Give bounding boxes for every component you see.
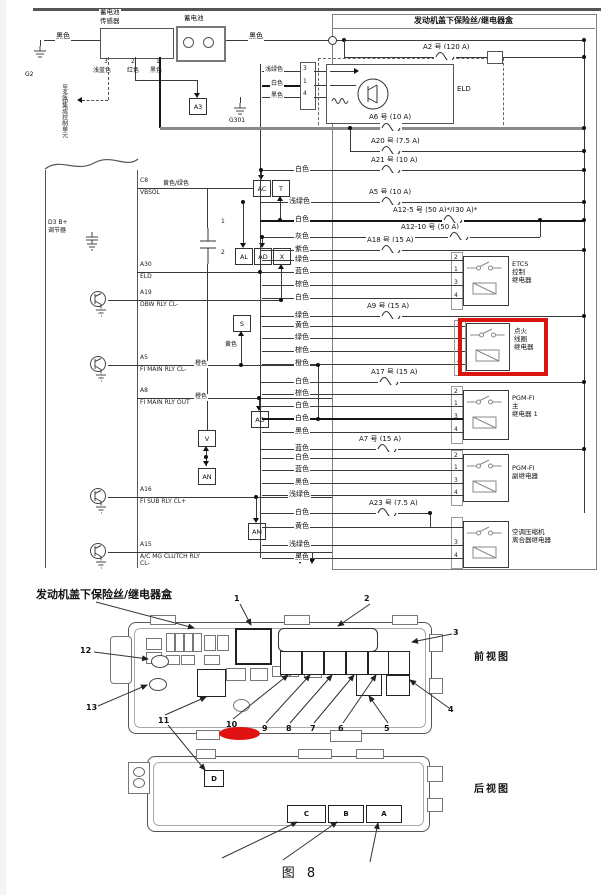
arrowhead [77,97,82,103]
junction-dot [316,417,320,421]
battery-terminal [203,37,214,48]
driver-transistor-icon [86,487,112,515]
wire-color-label: 黑色 [270,93,284,100]
wire [243,202,244,246]
wire [160,127,584,130]
pin-number: 4 [454,293,458,300]
wire-color-label: 蓝色 [294,268,310,276]
fuse-symbol [434,49,456,60]
wire [330,85,356,86]
fuse-symbol [380,194,402,205]
ecm-pin-code: A5 [140,355,148,362]
ground-icon [33,46,47,60]
junction-dot [241,200,245,204]
fuse-symbol [380,120,402,131]
manual-page: 发动机盖下保险丝/继电器盒 黑色 黑色 G2 蓄电池 传感器 蓄电池 3 2 1… [0,0,601,895]
ecm-pin-name: DBW RLY CL- [140,302,202,309]
relay-name-line: PGM-FI [512,394,538,402]
battery-sensor-label: 蓄电池 [99,9,121,16]
destination-note: 至多路集成控制单元 [60,84,67,150]
wire [262,418,463,420]
figure-caption-text: 图 8 [282,866,319,881]
etcs-relay-box [463,256,509,306]
relay-name-line: 继电器 [514,343,534,351]
wire-color-label: 灰色 [294,233,310,241]
wire [314,85,326,86]
ignition-coil-relay-box [466,323,510,371]
wire [262,364,466,365]
pin-number: 2 [454,453,458,460]
junction-dot [257,396,261,400]
figure-caption: 图 8 [0,862,601,881]
wire-color-label: 黑色 [248,33,264,41]
ecm-strip-left-edge [45,170,46,568]
wire-color-label: 橙色 [194,394,208,401]
wire [260,513,430,514]
wire [108,365,137,366]
relay-name: PGM-FI 副继电器 [512,464,538,480]
relay-symbol [467,324,508,369]
wire-dashed [82,100,108,101]
relay-symbol [464,522,505,566]
junction-dot [582,149,586,153]
battery-sensor-box [100,28,174,59]
wire [108,497,137,498]
driver-transistor-icon [86,542,112,570]
wire [318,365,319,419]
pin-number: 4 [454,427,458,434]
wire-color-label: 黑色 [294,428,310,436]
wire [262,326,466,327]
junction-dot [582,38,586,42]
wire [350,128,351,151]
ecm-pin-code: A19 [140,290,152,297]
wire-color-label: 紫色 [294,246,310,254]
wire [108,300,137,301]
wire-color-label: 棕色 [294,390,310,398]
pin-number: 2 [454,389,458,396]
ecm-pin-name: FI SUB RLY CL+ [140,499,202,506]
ecm-pin-name: ELD [140,274,202,281]
fuse-symbol [380,242,402,253]
junction-dot [582,168,586,172]
wire [262,351,466,352]
fuse-relay-box-titlebar: 发动机盖下保险丝/继电器盒 [332,14,595,29]
fuse-relay-box-title: 发动机盖下保险丝/继电器盒 [414,16,513,25]
fuse-symbol [376,505,398,516]
wire [344,40,345,57]
pin-number: 3 [454,280,458,287]
battery-terminal [183,37,194,48]
relay-name-line: 副继电器 [512,472,538,480]
wire [262,338,466,339]
arrowhead [203,461,209,466]
wire [262,285,463,286]
relay-symbol [464,257,505,302]
connector-box: AL [235,248,253,265]
wire [207,264,208,430]
ecm-pin-name: FI MAIN RLY OUT [140,400,202,407]
wire [137,188,253,189]
junction-dot [204,455,208,459]
battery-sensor-label: 传感器 [99,18,121,25]
wire-color-label: 棕色 [294,347,310,355]
wire [137,398,332,399]
relay-name-line: 继电器 1 [512,410,538,418]
junction-dot [582,447,586,451]
wire-color-label: 黄色 [294,322,310,330]
junction-dot [582,126,586,130]
wire [262,394,463,395]
wire-color-label: 黑色 [55,33,71,41]
wire-color-label: 白色 [294,415,310,423]
fuse-label: A12-5 号 (50 A)*/(30 A)* [392,207,478,215]
wire [137,365,318,366]
relay-name: 点火 线圈 继电器 [514,327,534,351]
junction-dot [260,235,264,239]
arrowhead [354,68,359,74]
wire-color-label: 白色 [294,166,310,174]
junction-dot [582,218,586,222]
fusebox-illustration: 发动机盖下保险丝/继电器盒 1 2 3 4 5 6 7 8 9 10 [0,578,601,895]
junction-dot [258,270,262,274]
arrowhead [240,243,246,248]
wire [262,260,463,261]
wire [262,558,463,559]
wire [108,552,137,553]
relay-name-line: 离合器继电器 [512,536,551,544]
driver-transistor-icon [86,355,112,383]
relay-name-line: 继电器 [512,276,532,284]
leader-lines [0,578,601,895]
pass-through-circle [328,36,337,45]
wire [262,272,463,273]
wiring-schematic: 发动机盖下保险丝/继电器盒 黑色 黑色 G2 蓄电池 传感器 蓄电池 3 2 1… [0,0,601,578]
junction-dot [254,495,258,499]
ecm-pin-name: A/C MG CLUTCH RLY CL- [140,554,210,568]
pin-number: 2 [454,255,458,262]
pin-number: 1 [454,401,458,408]
ecm-pin-code: C8 [140,178,148,185]
wire [430,513,431,527]
wire-color-label: 绿色 [294,334,310,342]
ground-label: G2 [24,72,34,79]
fuse-symbol [442,212,464,223]
ecm-pin-code: A15 [140,542,152,549]
pgm-fi-main-relay-box [463,390,509,440]
wire [137,272,260,273]
wire [159,57,161,128]
wire [262,527,463,528]
wire-color-label: 黑色 [294,479,310,487]
relay-name-line: 空调压缩机 [512,528,551,536]
pin-number: 4 [454,490,458,497]
wire [262,406,463,407]
connector-box: AN [198,468,216,485]
wire-color-label: 绿色 [294,312,310,320]
eld-label: ELD [456,86,472,94]
capacitor-symbol [197,228,219,264]
ecm-pin-code: A16 [140,487,152,494]
wire-dashed [108,57,109,100]
wire-color-label: 红色 [126,68,140,75]
connector-box: S [233,315,251,332]
wire [262,432,463,433]
pin-number: 1 [454,267,458,274]
wire-color-label: 浅绿色 [288,541,311,549]
wire [44,40,100,41]
arrowhead [238,331,244,336]
junction-dot [278,218,282,222]
pin-number: 1 [303,79,307,86]
pin-number: 4 [454,553,458,560]
connector-box: AC [253,180,271,197]
inline-connector [487,51,503,64]
wire [314,97,326,98]
bus-wire [260,64,261,558]
wire-color-label: 白色 [294,378,310,386]
pin-number: 1 [221,219,225,226]
wire-color-label: 白色 [294,509,310,517]
connector-box: A3 [189,98,207,115]
pin-number: 2 [221,250,225,257]
fuse-symbol [376,441,398,452]
junction-dot [582,380,586,384]
ecm-pin-code: A30 [140,262,152,269]
arrowhead [277,196,283,201]
fuse-symbol [380,308,402,319]
wire-color-label: 白色 [294,216,310,224]
junction-dot [239,363,243,367]
wire-color-label: 黑色 [294,554,310,562]
connector-box: V [198,430,216,447]
wire [241,333,242,365]
wire-color-label: 白色 [294,454,310,462]
pgm-fi-sub-relay-box [463,454,509,502]
wire-color-label: 黄色/绿色 [162,181,190,188]
wire [314,71,326,72]
wire [262,483,463,484]
relay-symbol [464,391,505,436]
ground-icon [233,103,247,117]
connector-box: T [272,180,290,197]
ground-label: G301 [228,118,246,125]
bus-wire [584,40,585,513]
wire [330,71,356,72]
pin-number: 4 [303,91,307,98]
wire-color-label: 黄色 [224,342,238,349]
relay-name: ETCS 控制 继电器 [512,260,532,284]
battery-label: 蓄电池 [183,15,205,22]
wire [135,57,136,80]
fuse-symbol [448,229,470,240]
relay-name-line: ETCS [512,260,532,268]
wire-color-label: 白色 [294,294,310,302]
wire [540,220,541,237]
wire-color-label: 浅绿色 [288,491,311,499]
wire-color-label: 浅蓝色 [92,68,112,75]
wire-color-label: 浅绿色 [288,198,311,206]
wire-color-label: 绿色 [294,256,310,264]
relay-name-line: PGM-FI [512,464,538,472]
fuse-symbol [378,374,400,385]
connector-box: AM [248,523,266,540]
wire-color-label: 棕色 [294,281,310,289]
pin-number: 3 [454,414,458,421]
ac-clutch-relay-box [463,521,509,568]
junction-dot [279,298,283,302]
junction-dot [259,168,263,172]
arrowhead [253,518,259,523]
wire [135,80,198,81]
driver-transistor-icon [86,290,112,318]
wire-color-label: 浅绿色 [264,67,284,74]
wire-color-label: 黄色 [294,523,310,531]
junction-dot [348,126,352,130]
eld-coil-squiggle [330,96,352,105]
pin-number: 3 [454,540,458,547]
wire [262,470,463,471]
junction-dot [582,248,586,252]
fuse-symbol [380,162,402,173]
wire-color-label: 白色 [294,402,310,410]
pin-number: 3 [303,66,307,73]
junction-dot [582,55,586,59]
relay-name: 空调压缩机 离合器继电器 [512,528,551,544]
wire [344,57,584,58]
junction-dot [316,363,320,367]
regulator-label: D3 B+ [47,220,69,227]
wire-color-label: 蓝色 [294,466,310,474]
wire [207,188,208,228]
junction-dot [582,314,586,318]
wire [262,298,463,299]
arrowhead [203,446,209,451]
ecm-pin-name: VBSOL [140,190,202,197]
pin-number: 3 [454,478,458,485]
junction-dot [538,218,542,222]
junction-dot [582,200,586,204]
wire-color-label: 橙色 [294,360,310,368]
relay-name: PGM-FI 主 继电器 1 [512,394,538,418]
wire-color-label: 白色 [270,81,284,88]
wire-color-label: 橙色 [194,361,208,368]
wire [262,458,463,459]
pin-number: 1 [454,465,458,472]
ecm-pin-code: A8 [140,388,148,395]
wire-color-label: 蓝色 [294,445,310,453]
arrowhead [258,175,264,180]
eld-transistor-symbol [356,77,390,111]
ecm-torn-edge [38,155,142,173]
junction-dot [428,511,432,515]
fuse-symbol [380,143,402,154]
capacitor-ground-icon [84,232,100,251]
wire [222,40,584,41]
regulator-label: 调节器 [47,228,67,235]
relay-symbol [464,455,505,500]
ecm-pin-name: FI MAIN RLY CL- [140,367,202,374]
relay-name-line: 点火 [514,327,534,335]
ecm-strip-right-edge [137,170,138,568]
